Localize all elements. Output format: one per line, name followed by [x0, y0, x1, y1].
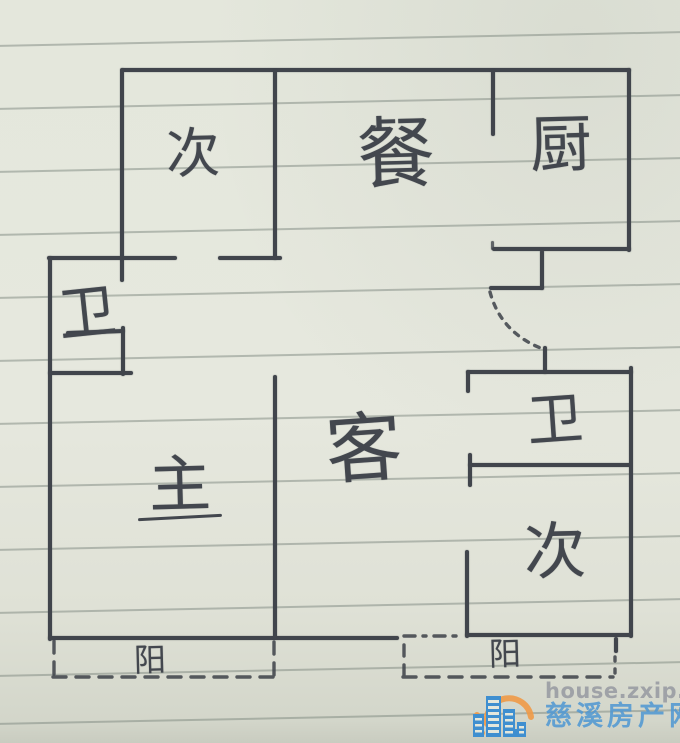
wall-entry-step-horizontal: [489, 286, 544, 290]
room-label-dining: 餐: [356, 115, 436, 195]
wall-dining-kitchen-divider: [491, 70, 495, 136]
wall-master-living-divider: [273, 375, 277, 639]
room-label-balcony-left: 阳: [134, 644, 167, 677]
wall-bedroom-dining-divider: [273, 70, 277, 260]
room-label-master-bedroom: 主: [148, 453, 212, 517]
room-label-bathroom-left: 卫: [55, 281, 119, 345]
wall-right-exterior-lower: [629, 366, 633, 638]
wall-bathroom-left-bottom: [48, 371, 133, 375]
site-logo-icon: [470, 681, 536, 739]
wall-bathroom-right-bottom-tick: [468, 453, 472, 487]
entry-door-swing-arc: [490, 292, 543, 349]
room-label-balcony-right: 阳: [489, 638, 522, 671]
ruled-line: [0, 220, 680, 236]
wall-kitchen-bottom: [492, 247, 631, 251]
watermark-url: house.zxip.com: [545, 681, 680, 702]
wall-kitchen-bottom-tick: [491, 241, 494, 250]
room-label-bedroom-top: 次: [165, 126, 220, 181]
wall-balcony-right-stub: [614, 637, 618, 653]
ruled-line: [0, 346, 680, 362]
room-label-living: 客: [323, 408, 404, 489]
wall-kitchen-right: [627, 68, 631, 252]
floor-plan-photo: 次 餐 厨 卫 客 主 卫 次 阳 阳 ho: [0, 0, 680, 743]
wall-bathroom-right-top: [466, 370, 633, 374]
watermark-site-name: 慈溪房产网: [545, 703, 680, 731]
ruled-line: [0, 661, 680, 677]
wall-bedroom-bottom-left: [465, 550, 469, 638]
ruled-line: [0, 598, 680, 614]
wall-entry-step-vertical: [540, 250, 544, 290]
wall-bedroom-top-left: [120, 68, 124, 282]
wall-bathroom-right-bottom: [468, 463, 631, 467]
wall-hall-top-left: [47, 256, 177, 260]
wall-bathroom-left-inner-vertical: [121, 326, 125, 376]
wall-top-exterior: [121, 68, 631, 72]
wall-hall-top-right: [218, 256, 282, 260]
wall-bottom-exterior: [48, 636, 399, 640]
wall-left-exterior: [48, 256, 52, 641]
room-label-bathroom-right: 卫: [525, 391, 585, 451]
wall-bathroom-right-top-tick: [466, 370, 470, 393]
ruled-line: [0, 31, 680, 47]
room-label-kitchen: 厨: [529, 113, 593, 177]
watermark: house.zxip.com 慈溪房产网: [470, 681, 680, 739]
room-label-bedroom-bottom: 次: [523, 520, 587, 584]
